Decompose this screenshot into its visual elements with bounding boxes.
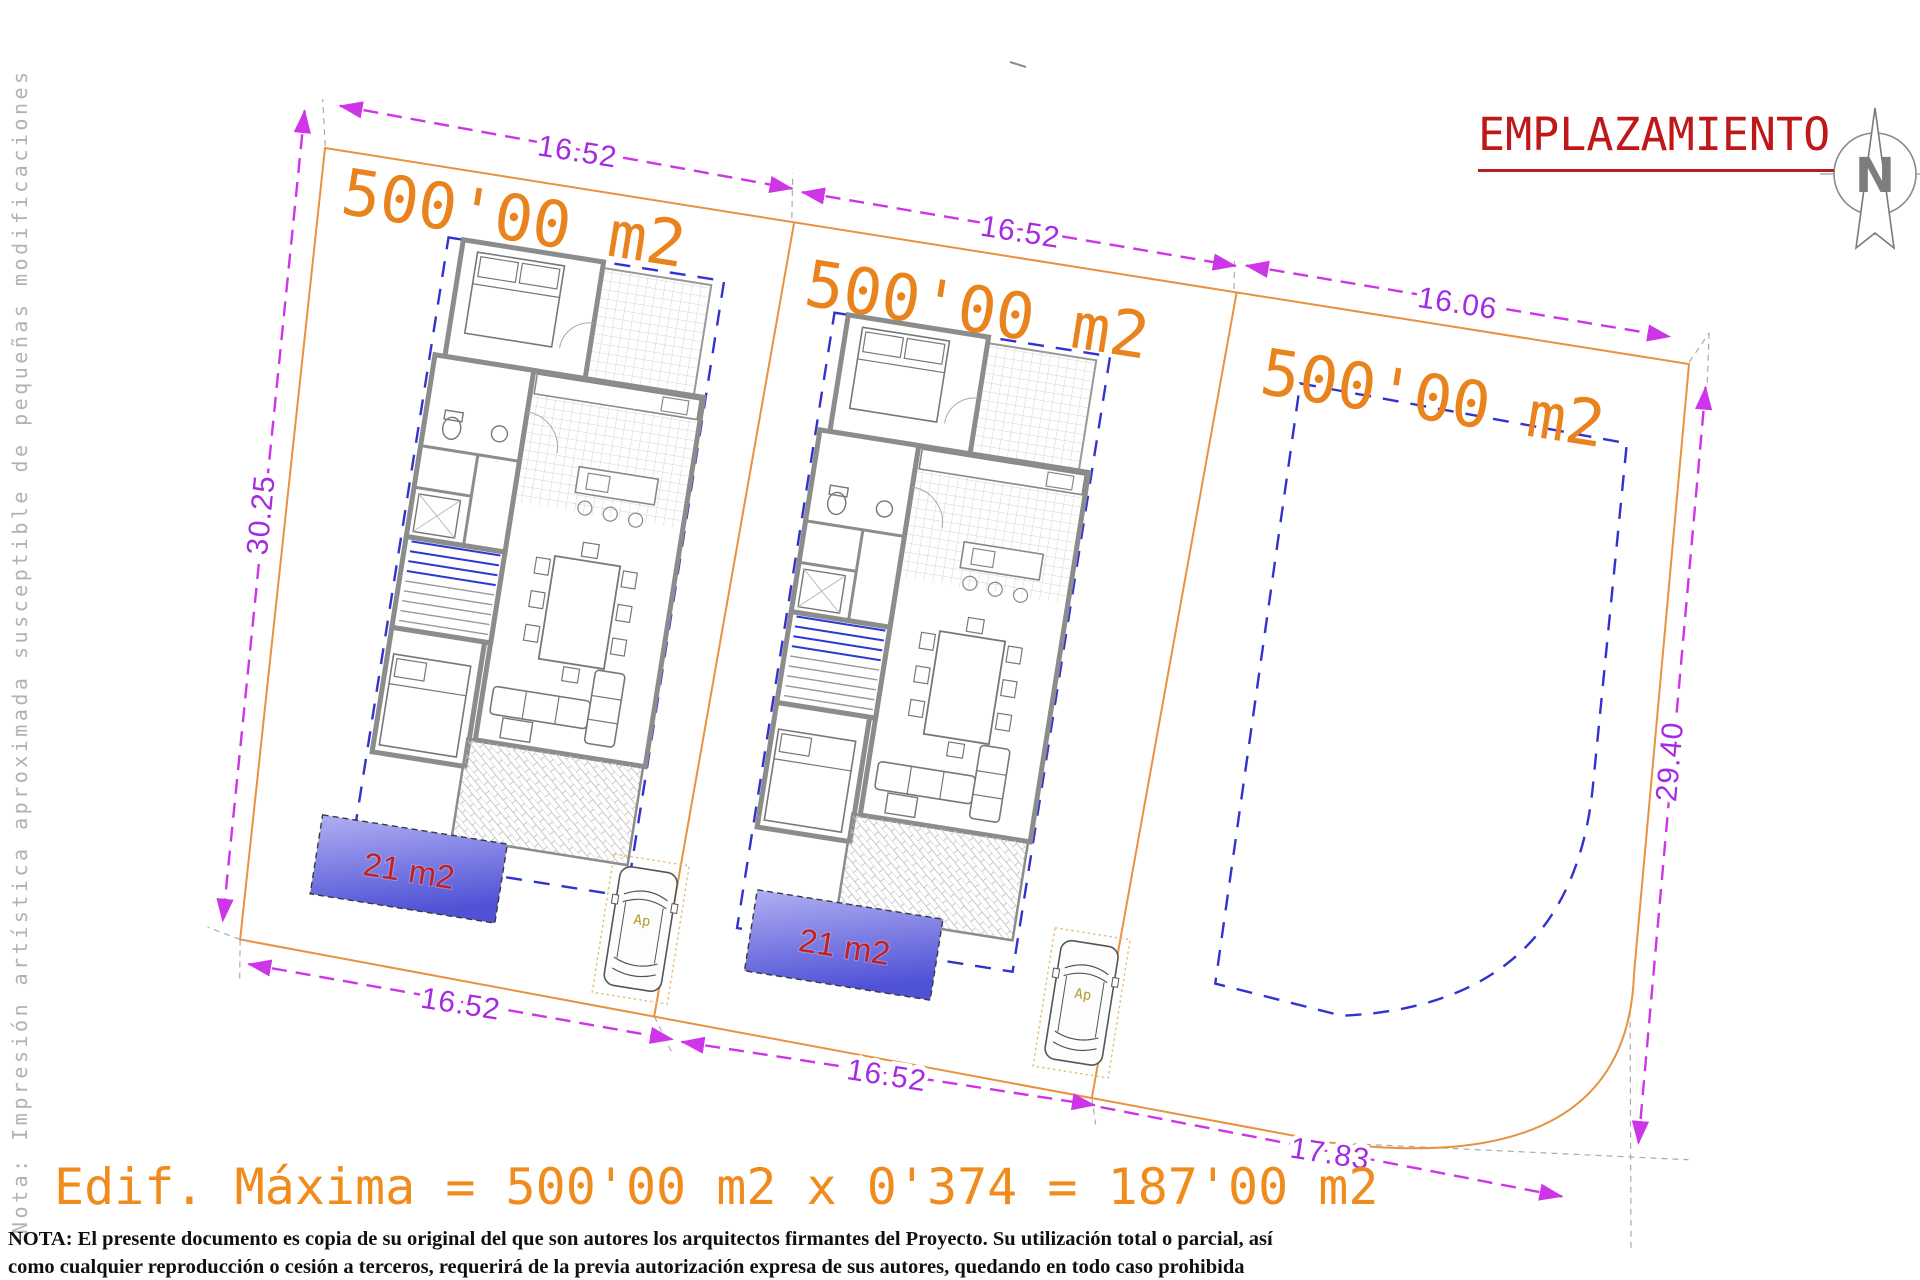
parking-label-2: Ap	[1073, 986, 1092, 1004]
dimension-label-bottom2: 16.52	[845, 1053, 929, 1098]
margin-note: Nota: Impresión artística aproximada sus…	[8, 68, 32, 1234]
dimension-label-left: 30.25	[241, 474, 282, 557]
north-compass-icon: N	[1820, 108, 1920, 248]
plot-3-area-label: 500'00 m2	[1256, 336, 1610, 463]
setback-line-plot3	[1203, 383, 1648, 1049]
dimension-label-bottom1: 16.52	[419, 982, 503, 1027]
dimension-label-top3: 16.06	[1415, 281, 1499, 326]
site-plan-drawing: 21 m2 21 m2 Ap Ap 500'00 m2 500'00 m2 50…	[0, 0, 1920, 1280]
legal-note-line1: NOTA: El presente documento es copia de …	[8, 1228, 1273, 1251]
legal-note-line2: como cualquier reproducción o cesión a t…	[8, 1256, 1244, 1279]
page-title: EMPLAZAMIENTO	[1478, 108, 1834, 172]
dimension-label-top2: 16.52	[978, 210, 1062, 255]
north-label: N	[1855, 148, 1895, 204]
house-plan-2	[746, 313, 1107, 940]
stray-mark	[1010, 62, 1026, 67]
car-icon-2	[1040, 938, 1124, 1067]
site-plan-page: 21 m2 21 m2 Ap Ap 500'00 m2 500'00 m2 50…	[0, 0, 1920, 1280]
house-plan-1	[361, 238, 722, 865]
dimension-label-right: 29.40	[1650, 720, 1690, 803]
parking-label-1: Ap	[632, 912, 651, 930]
dimension-label-top1: 16.52	[535, 129, 619, 174]
car-icon-1	[599, 865, 683, 994]
max-edificability-text: Edif. Máxima = 500'00 m2 x 0'374 = 187'0…	[54, 1158, 1379, 1216]
